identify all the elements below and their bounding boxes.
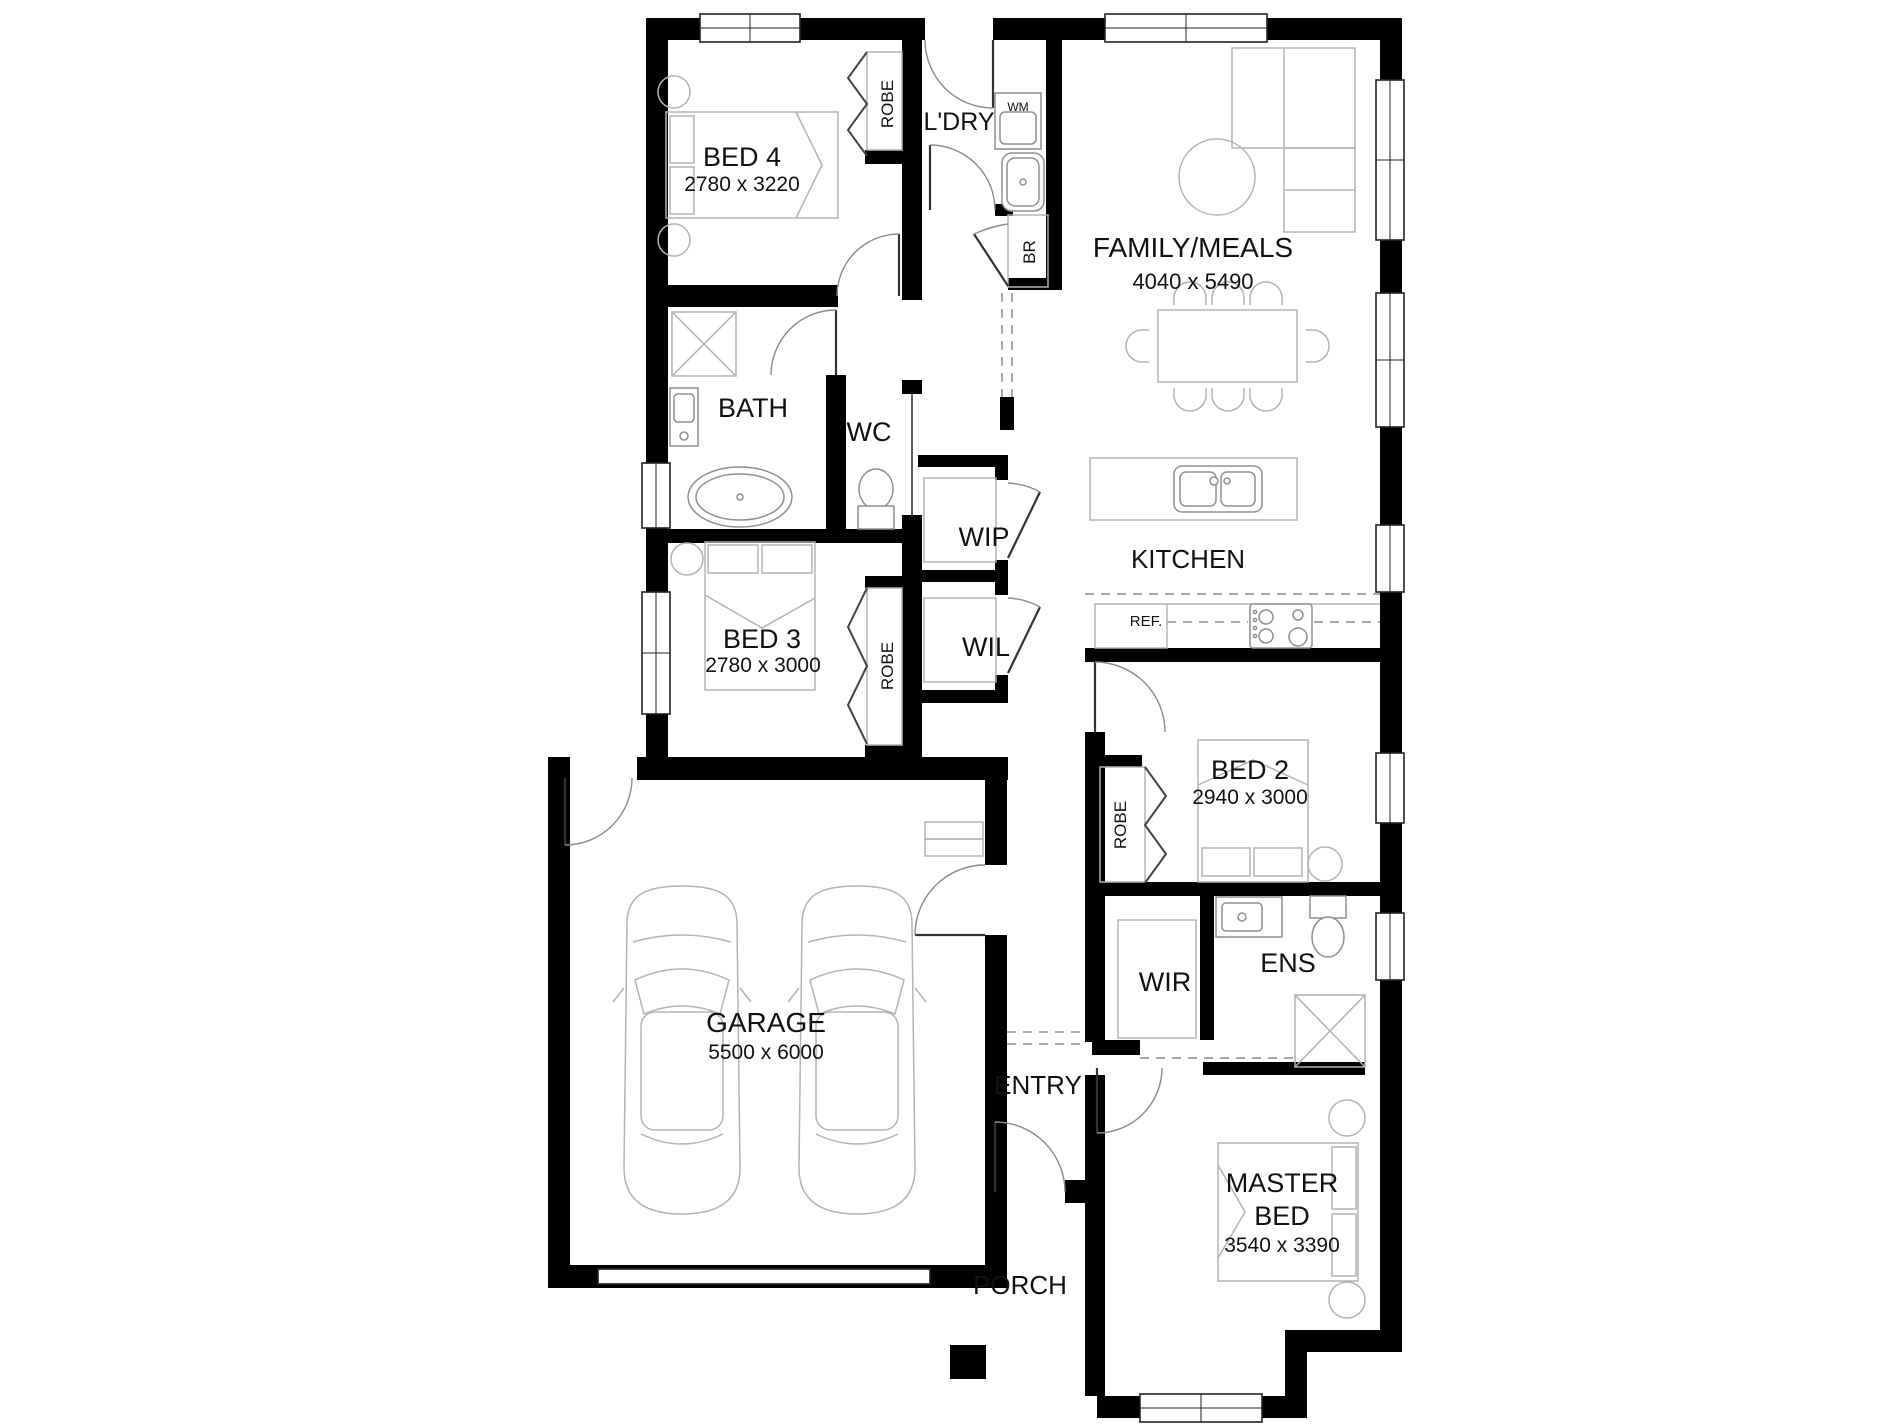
window [1376, 913, 1404, 980]
label-ref: REF. [1130, 613, 1163, 630]
label-master-line2: BED [1254, 1201, 1310, 1231]
label-bed4-dims: 2780 x 3220 [684, 173, 800, 196]
label-robe-bed4: ROBE [878, 80, 897, 128]
door-bed4 [837, 234, 899, 296]
label-wil: WIL [962, 632, 1010, 662]
label-family: FAMILY/MEALS [1093, 232, 1293, 263]
door-garage-side [565, 778, 632, 845]
pillow-icon [1254, 848, 1302, 876]
label-bed2: BED 2 [1211, 755, 1289, 785]
burner-icon [1259, 629, 1273, 643]
label-bed3: BED 3 [723, 624, 801, 654]
chair-icon [1212, 388, 1244, 411]
label-garage: GARAGE [706, 1007, 826, 1038]
window [1140, 1394, 1262, 1422]
label-ldry: L'DRY [923, 108, 994, 136]
knob-icon [1253, 634, 1256, 637]
label-bed4: BED 4 [703, 142, 781, 172]
label-master-dims: 3540 x 3390 [1224, 1234, 1340, 1257]
floorplan-page: BED 4 2780 x 3220 ROBE L'DRY WM BR FAMIL… [0, 0, 1900, 1425]
window [642, 592, 670, 714]
door-wil [1008, 598, 1040, 673]
label-wir: WIR [1139, 967, 1191, 997]
window [642, 463, 670, 528]
dining-table-icon [1158, 310, 1297, 382]
label-entry: ENTRY [994, 1070, 1082, 1100]
label-porch: PORCH [973, 1270, 1067, 1300]
pillow-icon [708, 545, 758, 573]
blanket-fold [796, 112, 822, 218]
room-ens [1216, 896, 1365, 1067]
door-br [974, 224, 1008, 286]
linen-cupboard-icon [672, 312, 736, 376]
bifold-door-icon [848, 52, 867, 156]
label-wm: WM [1007, 100, 1028, 114]
label-robe-bed2: ROBE [1111, 801, 1130, 849]
bifold-door-icon [848, 588, 867, 744]
drain-icon [737, 494, 743, 500]
label-ens: ENS [1260, 948, 1316, 978]
label-wip: WIP [959, 522, 1010, 552]
room-wc [858, 469, 894, 529]
knob-icon [1253, 618, 1256, 621]
window [1376, 753, 1404, 823]
label-robe-bed3: ROBE [878, 642, 897, 690]
chair-icon [1174, 388, 1206, 411]
step-icon [925, 822, 983, 839]
door-bed2 [1095, 662, 1165, 732]
burner-icon [1293, 610, 1303, 620]
toilet-icon [1310, 896, 1346, 918]
label-wc: WC [847, 417, 892, 447]
knob-icon [1253, 610, 1256, 613]
chair-icon [1126, 330, 1149, 362]
side-table-icon [1308, 847, 1342, 881]
tap-icon [1238, 913, 1246, 921]
pillow-icon [670, 116, 694, 163]
sofa-icon [1232, 48, 1355, 148]
label-bath: BATH [718, 393, 788, 423]
label-master-line1: MASTER [1226, 1168, 1339, 1198]
chair-icon [1250, 388, 1282, 411]
bifold-door-icon [1145, 767, 1166, 883]
chair-icon [1306, 330, 1329, 362]
window [1376, 293, 1404, 427]
pillow-icon [762, 545, 812, 573]
side-table-icon [1329, 1100, 1365, 1136]
rug-icon [1179, 139, 1255, 215]
side-table-icon [1329, 1282, 1365, 1318]
floorplan-svg: BED 4 2780 x 3220 ROBE L'DRY WM BR FAMIL… [0, 0, 1900, 1425]
door-wip [1008, 483, 1040, 558]
burner-icon [1289, 628, 1307, 646]
toilet-icon [859, 469, 893, 509]
vanity-basin-icon [674, 394, 694, 422]
window [1105, 14, 1267, 42]
window [1376, 80, 1404, 240]
tap-icon [1224, 478, 1230, 484]
label-br: BR [1020, 240, 1039, 264]
door-garage-internal [915, 865, 985, 935]
label-garage-dims: 5500 x 6000 [708, 1041, 824, 1064]
burner-icon [1259, 610, 1273, 624]
drain-icon [1020, 179, 1026, 185]
door-bath [771, 310, 836, 375]
tap-icon [680, 432, 688, 440]
side-table-icon [671, 543, 703, 575]
kitchen-sink-icon [1221, 472, 1255, 506]
pillow-icon [1202, 848, 1250, 876]
door-master [1097, 1068, 1162, 1133]
label-family-dims: 4040 x 5490 [1132, 269, 1253, 294]
step-icon [925, 839, 983, 856]
toilet-icon [1312, 917, 1344, 957]
washing-machine-icon [1000, 112, 1036, 144]
tap-icon [1210, 477, 1218, 485]
window [700, 14, 800, 42]
door-ldry-external [925, 40, 993, 108]
label-bed2-dims: 2940 x 3000 [1192, 786, 1308, 809]
shower-icon [1295, 995, 1365, 1067]
garage-door-panel [598, 1269, 930, 1284]
chair-icon [1250, 282, 1282, 305]
knob-icon [1253, 626, 1256, 629]
door-ldry-internal [930, 145, 995, 210]
room-family [1126, 48, 1355, 411]
label-bed3-dims: 2780 x 3000 [705, 654, 821, 677]
label-kitchen: KITCHEN [1131, 544, 1245, 574]
toilet-icon [858, 506, 894, 529]
window [1376, 525, 1404, 592]
kitchen-sink-icon [1180, 472, 1216, 506]
